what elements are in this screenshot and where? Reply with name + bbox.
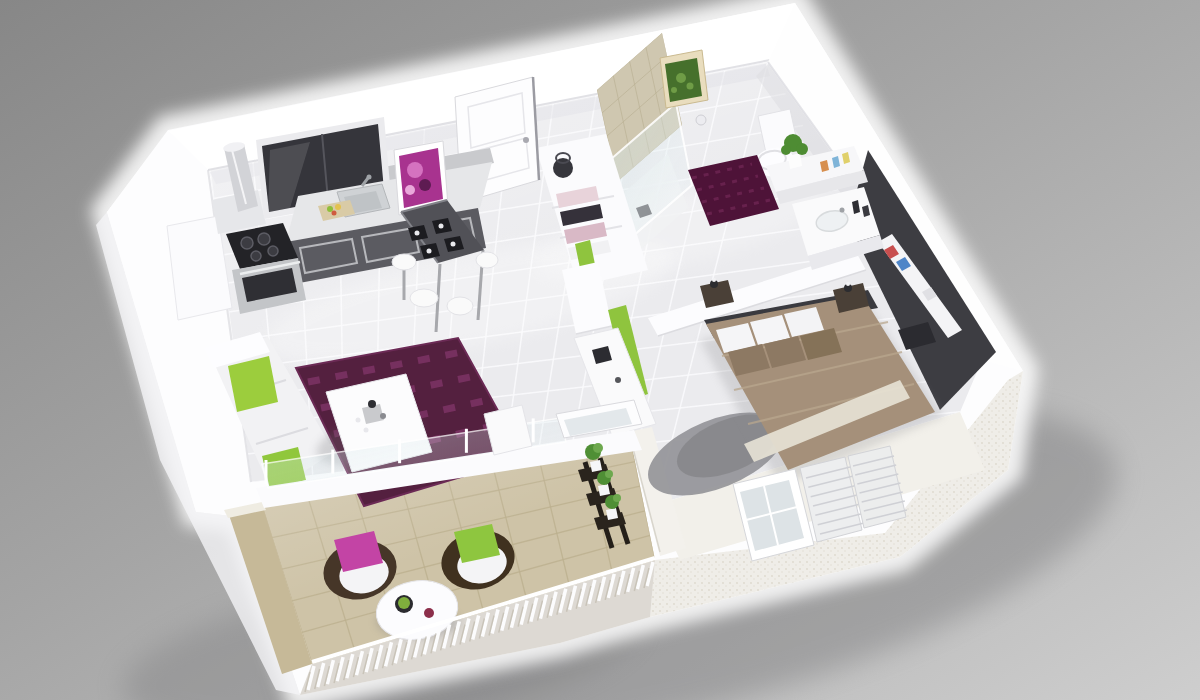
closet-handbag xyxy=(553,158,573,178)
cutting-board-food xyxy=(327,206,333,212)
balcony-bowl-berries xyxy=(424,608,434,618)
plant-pot-2 xyxy=(598,484,610,496)
plant-pot-3 xyxy=(606,508,618,520)
sideboard-item-dot xyxy=(615,377,621,383)
nightstand-right-lamp-glow xyxy=(846,282,850,286)
nightstand-left-lamp-glow xyxy=(712,278,716,282)
artwork-blob-pale xyxy=(405,185,415,195)
artwork-blob-dark xyxy=(419,179,431,191)
sofa-pillow-green-1 xyxy=(228,356,278,412)
apartment-3d-floorplan-render xyxy=(0,0,1200,700)
apartment-3d-floorplan-stage xyxy=(0,0,1200,700)
kitchen-artwork-purple xyxy=(399,148,443,208)
cutting-board-food-3 xyxy=(332,211,337,216)
balcony-bowl-salad xyxy=(398,597,410,609)
plant-pot-1 xyxy=(590,460,602,472)
espresso-cup xyxy=(380,413,386,419)
espresso-machine xyxy=(368,400,376,408)
artwork-blob-light xyxy=(407,162,423,178)
kitchen-faucet-head xyxy=(367,175,372,180)
entry-door-handle xyxy=(523,137,529,143)
toilet-paper-holder xyxy=(696,115,706,125)
cutting-board-food-2 xyxy=(335,204,341,210)
vanity-faucet xyxy=(840,208,845,213)
